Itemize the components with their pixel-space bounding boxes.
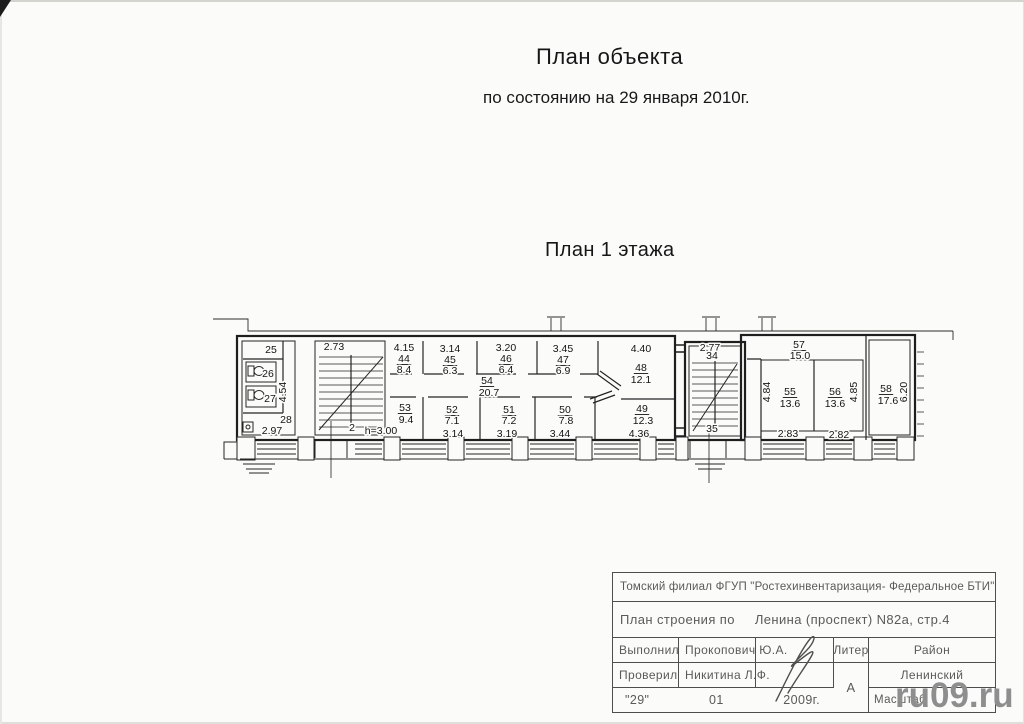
date-day: "29"	[625, 693, 649, 707]
party-wall-ticks	[917, 352, 924, 436]
checked-by: Никитина Л.Ф.	[679, 663, 756, 688]
plan-label: 56	[829, 386, 841, 398]
plan-label: 4.84	[761, 382, 773, 403]
plan-label: 2.73	[324, 341, 345, 353]
scanned-document-page: План объекта по состоянию на 29 января 2…	[0, 0, 1024, 724]
plan-label: 25	[265, 344, 277, 356]
plan-label: 2.83	[778, 428, 799, 440]
plan-label: 26	[262, 368, 274, 380]
liter-value: А	[834, 663, 869, 712]
plan-label: 15.0	[790, 350, 811, 362]
plan-label: 55	[784, 386, 796, 398]
plan-label: 4.40	[631, 343, 652, 355]
plan-label: 3.14	[443, 428, 464, 440]
plan-label: 9.4	[399, 414, 414, 426]
liter-label: Литер	[834, 638, 869, 663]
plan-label: 7.2	[502, 415, 517, 427]
org-name: Томский филиал ФГУП "Ростехинвентаризаци…	[613, 573, 995, 602]
plan-label: 7.1	[445, 415, 460, 427]
plan-label: 54	[481, 375, 493, 387]
plan-label: 8.4	[397, 364, 412, 376]
plan-label: 12.1	[631, 374, 652, 386]
plan-label: 53	[399, 402, 411, 414]
plan-label: 7.8	[559, 415, 574, 427]
plan-label: 27	[264, 393, 276, 405]
plan-label: 6.3	[443, 365, 458, 377]
plan-label: 6.9	[556, 365, 571, 377]
porch-steps	[240, 459, 728, 473]
doc-type-label: План строения по	[620, 612, 735, 627]
plan-label: 13.6	[825, 398, 846, 410]
toilet-icon	[248, 390, 264, 400]
plan-label: 2	[349, 422, 355, 434]
plan-label: 3.19	[497, 428, 518, 440]
made-by: Прокопович Ю.А.	[679, 638, 756, 663]
plan-label: 17.6	[878, 395, 899, 407]
plan-label: 13.6	[780, 398, 801, 410]
plan-label: 49	[636, 403, 648, 415]
plan-label: 2.97	[262, 425, 283, 437]
district-label: Район	[869, 638, 995, 663]
date-month: 01	[709, 693, 724, 707]
plan-label: 3.44	[550, 428, 571, 440]
checked-label: Проверил	[613, 663, 679, 688]
plan-label: 58	[880, 383, 892, 395]
sink-icon	[243, 422, 253, 432]
signature-mark	[756, 623, 834, 713]
plan-label: 2.82	[829, 429, 850, 441]
plan-label: 48	[635, 362, 647, 374]
plan-label: 34	[706, 350, 718, 362]
plan-label: 12.3	[633, 415, 654, 427]
watermark: ru09.ru	[895, 676, 1014, 716]
plan-label: 4.54	[277, 382, 289, 403]
plan-label: 4.36	[629, 428, 650, 440]
plan-label: 6.20	[898, 382, 910, 403]
plan-label: 4.85	[848, 382, 860, 403]
made-label: Выполнил	[613, 638, 679, 663]
plan-label: 20.7	[479, 387, 500, 399]
stairwell-1	[315, 341, 385, 435]
interior-walls	[242, 335, 924, 440]
plan-label: h=3.00	[365, 425, 398, 437]
plan-labels: 252627282.974.542.7324.15448.43.14456.33…	[262, 339, 910, 441]
plan-label: 6.4	[499, 364, 514, 376]
plan-label: 35	[706, 423, 718, 435]
